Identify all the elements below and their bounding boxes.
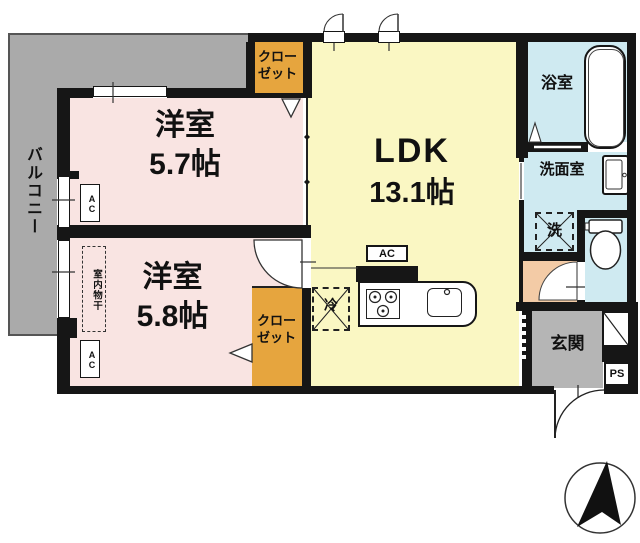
hallway-floor [523, 261, 577, 302]
ps-label: PS [606, 368, 628, 381]
room57-size: 5.7帖 [80, 147, 290, 183]
entrance-step-dashed [522, 311, 526, 360]
wall-washroom-toilet-h [577, 210, 636, 218]
ac-unit-room57: AC [80, 184, 100, 222]
stove [366, 289, 400, 319]
wall-bath-washroom [528, 142, 588, 152]
ac-unit-room58: AC [80, 340, 100, 378]
bathtub [584, 45, 626, 149]
wall-entrance-left-lower [522, 360, 526, 388]
balcony-border-left [8, 33, 10, 336]
sliding-partition [306, 98, 308, 225]
room58-name: 洋室 [60, 260, 285, 296]
room57-name: 洋室 [80, 108, 290, 144]
bath-label: 浴室 [526, 74, 588, 93]
wall-ldk-washroom-b [519, 200, 524, 253]
window-room57-top [93, 86, 167, 97]
wall-room-top-a [57, 88, 93, 98]
wall-washroom-toilet-v-a [577, 210, 585, 262]
floor-plan: AC AC 室内物干 AC PS [0, 0, 640, 543]
entrance-label: 玄関 [532, 334, 603, 354]
closet1-label-line2: ゼット [250, 66, 305, 82]
kitchen-sink [427, 288, 462, 317]
wall-right-lower [630, 302, 638, 394]
ldk-name: LDK [312, 131, 512, 172]
shoe-cabinet [602, 311, 630, 347]
kitchen-ac-label: AC [368, 248, 406, 261]
wall-hall-entrance [516, 302, 638, 311]
closet2-label-line2: ゼット [249, 330, 304, 346]
washroom-label: 洗面室 [521, 161, 603, 179]
kitchen-wall [356, 266, 418, 282]
wall-bottom-left [57, 386, 554, 394]
balcony-border-top [8, 33, 250, 35]
balcony-label: バルコニー [16, 136, 42, 246]
wall-bottom-right [604, 386, 638, 394]
wall-room-top-b [167, 88, 248, 98]
bathtub-inner [588, 49, 624, 147]
closet2-label-line1: クロー [249, 313, 304, 329]
wall-shoe-ps [602, 347, 630, 362]
compass-icon [565, 461, 635, 533]
window-ldk-top-1 [323, 31, 345, 43]
closet1-label-line1: クロー [250, 49, 305, 65]
closet1-wall-bottom [248, 93, 311, 98]
kitchen-ac-label-box: AC [366, 245, 408, 262]
ldk-floor [306, 42, 519, 386]
ac-unit-room58-label: AC [81, 343, 97, 377]
room58-door-gap [302, 238, 311, 288]
fridge-label: 冷 [312, 297, 350, 314]
wall-laundry-hall [519, 252, 577, 261]
ldk-window2-arc [379, 14, 398, 32]
entrance-door-arc [555, 390, 604, 438]
ps-box: PS [604, 362, 630, 386]
wall-between-rooms [57, 225, 311, 238]
washroom-sink [602, 155, 629, 195]
window-room57-left [58, 176, 70, 228]
toilet-floor [585, 218, 627, 302]
wall-left-a [57, 88, 70, 176]
window-ldk-top-2 [378, 31, 400, 43]
balcony-border-bottom [8, 334, 60, 336]
ldk-window1-arc [324, 14, 343, 32]
laundry-label: 洗 [535, 222, 574, 240]
ac-unit-room57-label: AC [81, 187, 97, 221]
wall-ldk-bath [516, 42, 528, 158]
ldk-size: 13.1帖 [312, 176, 512, 211]
